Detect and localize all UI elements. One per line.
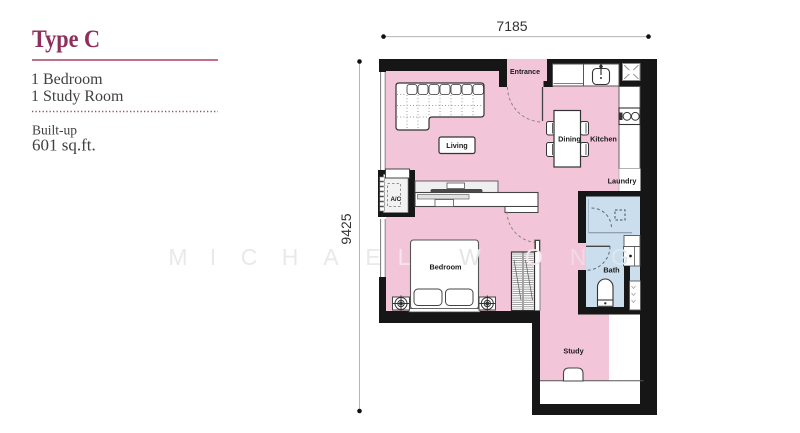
svg-text:A/C: A/C	[390, 196, 401, 203]
svg-text:N: N	[570, 244, 587, 270]
svg-text:Type C: Type C	[32, 26, 100, 53]
svg-text:1 Study Room: 1 Study Room	[31, 88, 124, 105]
svg-text:Dining: Dining	[558, 134, 581, 143]
svg-text:A: A	[323, 244, 339, 270]
svg-text:O: O	[525, 244, 543, 270]
svg-text:1 Bedroom: 1 Bedroom	[31, 71, 103, 88]
svg-text:I: I	[210, 244, 216, 270]
svg-text:Bedroom: Bedroom	[429, 263, 462, 272]
svg-text:H: H	[282, 244, 299, 270]
svg-text:W: W	[459, 244, 481, 270]
svg-text:G: G	[611, 244, 629, 270]
svg-text:Kitchen: Kitchen	[590, 134, 617, 143]
svg-text:Laundry: Laundry	[608, 176, 638, 185]
svg-text:Study: Study	[563, 346, 584, 355]
svg-text:9425: 9425	[338, 213, 354, 244]
svg-text:E: E	[365, 244, 380, 270]
svg-text:Entrance: Entrance	[510, 69, 540, 76]
svg-text:601 sq.ft.: 601 sq.ft.	[32, 136, 96, 155]
svg-text:7185: 7185	[496, 18, 527, 34]
svg-text:C: C	[241, 244, 258, 270]
svg-text:M: M	[168, 244, 187, 270]
svg-text:L: L	[398, 244, 411, 270]
svg-text:Living: Living	[446, 141, 468, 150]
